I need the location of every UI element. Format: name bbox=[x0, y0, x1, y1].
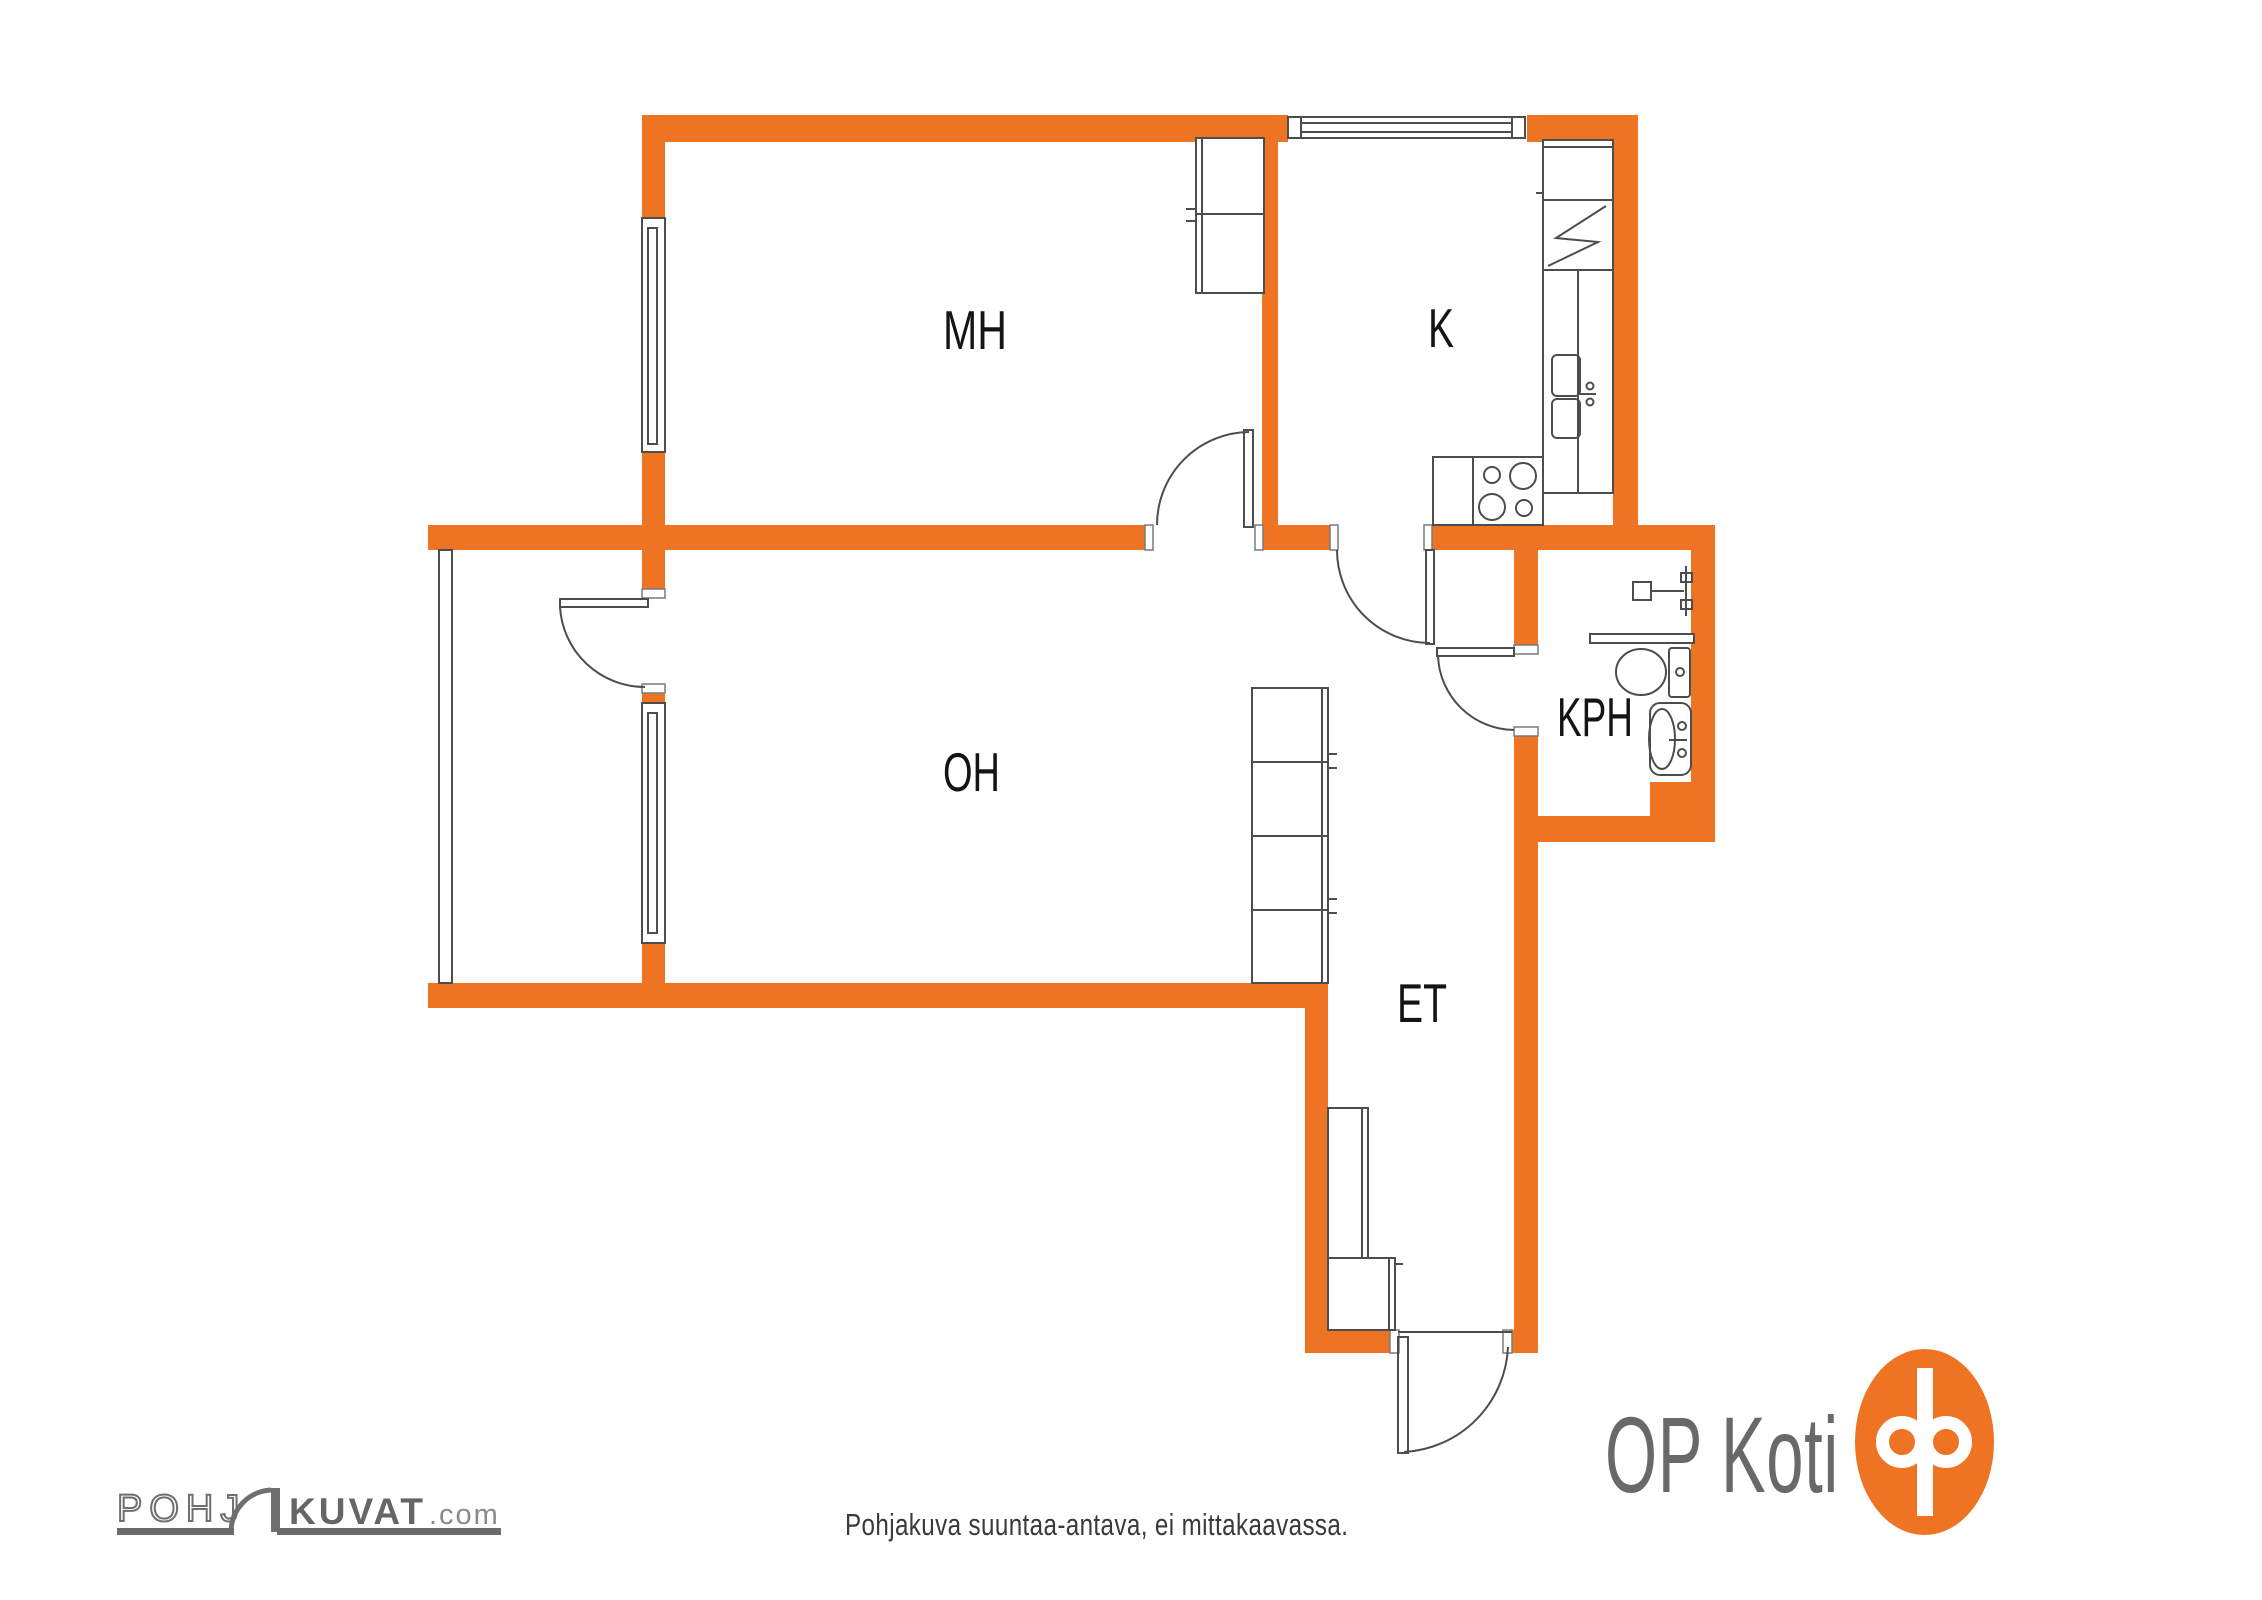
wall-kph-corner bbox=[1650, 782, 1715, 822]
jamb bbox=[1514, 727, 1538, 736]
wall-mid-center bbox=[1255, 525, 1337, 550]
wall-top-right bbox=[1527, 115, 1638, 142]
wall-oh-west-lower bbox=[642, 943, 665, 1008]
kitchen-door-icon bbox=[1337, 550, 1434, 644]
wall-et-east-upper bbox=[1514, 550, 1538, 647]
balcony-window-icon bbox=[642, 703, 665, 943]
room-label-et: ET bbox=[1397, 972, 1447, 1034]
pohjakuvat-logo-solid-text: KUVAT bbox=[289, 1491, 426, 1533]
balcony-railing bbox=[439, 550, 452, 983]
floorplan-page: MH K OH KPH ET POHJ KUVAT .com Pohjakuva… bbox=[0, 0, 2262, 1600]
jamb bbox=[1145, 525, 1153, 550]
fixtures bbox=[439, 117, 1694, 1453]
shower-icon bbox=[1633, 566, 1692, 616]
wall-mh-west-upper bbox=[642, 115, 665, 218]
jamb bbox=[1255, 525, 1263, 550]
balcony-door-icon bbox=[560, 599, 648, 687]
wall-mid-right bbox=[1430, 525, 1638, 550]
kitchen-counter-sink-icon bbox=[1543, 270, 1613, 493]
wall-kitchen-east bbox=[1613, 142, 1638, 550]
kitchen-cabinet-icon bbox=[1536, 140, 1613, 200]
entry-door-icon bbox=[1398, 1332, 1512, 1453]
jamb bbox=[1330, 525, 1338, 550]
stove-icon bbox=[1433, 457, 1543, 525]
jamb bbox=[1424, 525, 1432, 550]
jamb bbox=[1514, 645, 1538, 654]
wall-mid-left bbox=[642, 525, 1150, 550]
disclaimer-text: Pohjakuva suuntaa-antava, ei mittakaavas… bbox=[845, 1507, 1348, 1543]
op-logo-icon bbox=[1855, 1348, 1994, 1536]
door-jambs bbox=[642, 525, 1538, 1353]
mh-window-icon bbox=[642, 218, 665, 452]
kph-door-icon bbox=[1437, 648, 1514, 730]
wall-et-east-lower bbox=[1514, 731, 1538, 1353]
room-label-oh: OH bbox=[943, 741, 1000, 803]
bathroom-shelf-icon bbox=[1590, 634, 1694, 643]
wall-balcony-top bbox=[428, 525, 642, 550]
pohjakuvat-logo: POHJ KUVAT .com bbox=[117, 1486, 501, 1538]
fridge-icon bbox=[1543, 200, 1613, 270]
pohjakuvat-baseline-right bbox=[277, 1528, 501, 1535]
mh-door-icon bbox=[1157, 430, 1253, 527]
room-label-mh: MH bbox=[943, 299, 1007, 361]
mh-closet-icon bbox=[1186, 138, 1264, 293]
opkoti-wordmark: OP Koti bbox=[1605, 1392, 1839, 1517]
wall-top-left bbox=[642, 115, 1288, 142]
pohjakuvat-baseline-left bbox=[117, 1528, 234, 1535]
wall-et-west bbox=[1305, 985, 1328, 1353]
jamb bbox=[642, 684, 665, 693]
wall-et-south bbox=[1305, 1330, 1398, 1353]
wall-oh-south bbox=[428, 983, 1328, 1008]
room-label-kph: KPH bbox=[1557, 686, 1633, 748]
room-label-k: K bbox=[1428, 297, 1454, 359]
jamb bbox=[642, 589, 665, 598]
oh-closet-icon bbox=[1252, 688, 1337, 983]
et-closet-icon bbox=[1328, 1108, 1403, 1330]
wall-et-south-corner bbox=[1512, 1330, 1538, 1353]
kitchen-window-icon bbox=[1288, 117, 1525, 138]
pohjakuvat-door-icon bbox=[227, 1482, 285, 1534]
bathroom-sink-icon bbox=[1649, 703, 1691, 775]
